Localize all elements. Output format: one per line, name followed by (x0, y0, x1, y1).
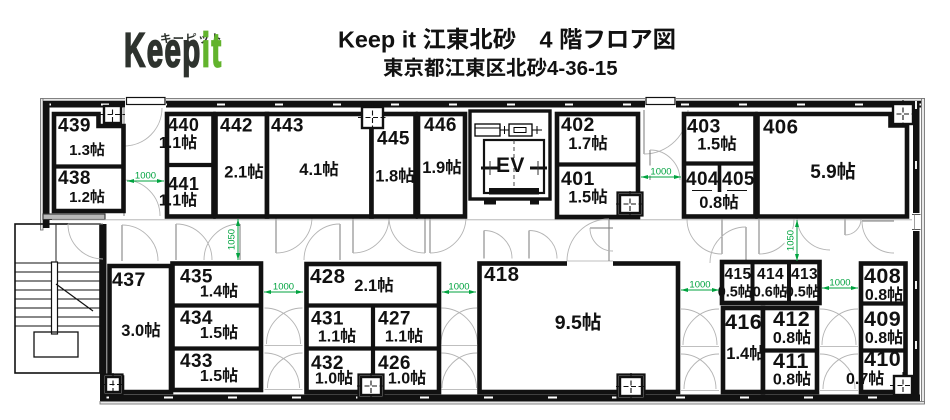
svg-text:0.8: 0.8 (865, 330, 887, 347)
svg-text:427: 427 (378, 309, 411, 330)
svg-text:1.2: 1.2 (69, 189, 90, 206)
svg-text:1.5: 1.5 (200, 325, 222, 342)
svg-text:0.8: 0.8 (865, 287, 887, 304)
svg-text:405: 405 (722, 169, 755, 190)
svg-text:443: 443 (271, 116, 304, 137)
svg-text:418: 418 (484, 263, 519, 286)
svg-text:0.5: 0.5 (786, 285, 806, 301)
svg-text:413: 413 (791, 266, 818, 283)
svg-text:1.1: 1.1 (318, 329, 340, 346)
svg-text:0.8: 0.8 (773, 330, 795, 347)
svg-text:440: 440 (168, 115, 199, 135)
svg-text:414: 414 (757, 266, 784, 283)
svg-text:1.0: 1.0 (315, 371, 337, 388)
svg-text:442: 442 (220, 116, 253, 137)
svg-text:5.9: 5.9 (810, 162, 836, 183)
svg-text:0.7: 0.7 (846, 371, 868, 388)
svg-text:428: 428 (310, 265, 345, 288)
svg-text:1.0: 1.0 (388, 371, 410, 388)
svg-text:1.1: 1.1 (385, 329, 407, 346)
svg-text:1.5: 1.5 (697, 136, 720, 154)
svg-text:415: 415 (725, 266, 752, 283)
svg-text:4.1: 4.1 (299, 161, 322, 179)
svg-text:401: 401 (561, 168, 595, 190)
svg-text:1000: 1000 (650, 167, 671, 178)
svg-text:1.3: 1.3 (69, 142, 90, 159)
svg-text:1.8: 1.8 (375, 168, 398, 186)
svg-text:1000: 1000 (829, 278, 850, 289)
svg-text:1000: 1000 (273, 282, 294, 293)
svg-text:412: 412 (773, 307, 810, 331)
svg-text:411: 411 (773, 349, 809, 373)
svg-text:4-36-15: 4-36-15 (547, 57, 618, 80)
svg-text:431: 431 (311, 309, 344, 330)
svg-text:404: 404 (686, 169, 719, 190)
svg-text:1.7: 1.7 (568, 135, 591, 153)
svg-text:437: 437 (112, 269, 146, 291)
svg-text:1000: 1000 (448, 282, 469, 293)
svg-text:439: 439 (58, 116, 91, 137)
svg-text:1.9: 1.9 (422, 159, 445, 177)
svg-text:1.1: 1.1 (159, 193, 181, 210)
svg-text:1000: 1000 (135, 171, 156, 182)
svg-text:Keep it: Keep it (338, 27, 416, 53)
svg-text:0.8: 0.8 (699, 194, 722, 212)
svg-text:1.5: 1.5 (568, 189, 591, 207)
svg-text:408: 408 (864, 264, 901, 288)
svg-text:416: 416 (725, 310, 762, 334)
svg-text:410: 410 (864, 347, 901, 371)
svg-text:0.8: 0.8 (773, 372, 795, 389)
svg-text:403: 403 (687, 116, 721, 138)
svg-text:Keepit: Keepit (124, 24, 223, 77)
svg-text:4: 4 (540, 27, 553, 53)
svg-text:EV: EV (496, 154, 525, 177)
svg-text:1.4: 1.4 (726, 345, 750, 363)
svg-text:402: 402 (561, 114, 595, 136)
svg-text:1.1: 1.1 (159, 135, 181, 152)
svg-text:1.4: 1.4 (200, 284, 222, 301)
svg-text:9.5: 9.5 (555, 312, 582, 334)
svg-text:1050: 1050 (227, 229, 238, 250)
svg-text:0.6: 0.6 (753, 285, 773, 301)
svg-text:446: 446 (424, 115, 457, 136)
svg-text:1.5: 1.5 (200, 368, 222, 385)
svg-text:3.0: 3.0 (121, 322, 144, 340)
svg-text:406: 406 (763, 116, 798, 139)
svg-text:0.5: 0.5 (718, 285, 738, 301)
svg-text:409: 409 (864, 307, 901, 331)
svg-text:1050: 1050 (786, 230, 797, 251)
svg-text:445: 445 (377, 129, 410, 150)
svg-text:441: 441 (168, 174, 199, 194)
svg-text:1000: 1000 (689, 280, 710, 291)
svg-text:438: 438 (58, 168, 91, 189)
svg-text:2.1: 2.1 (224, 164, 247, 182)
svg-text:2.1: 2.1 (354, 277, 377, 295)
